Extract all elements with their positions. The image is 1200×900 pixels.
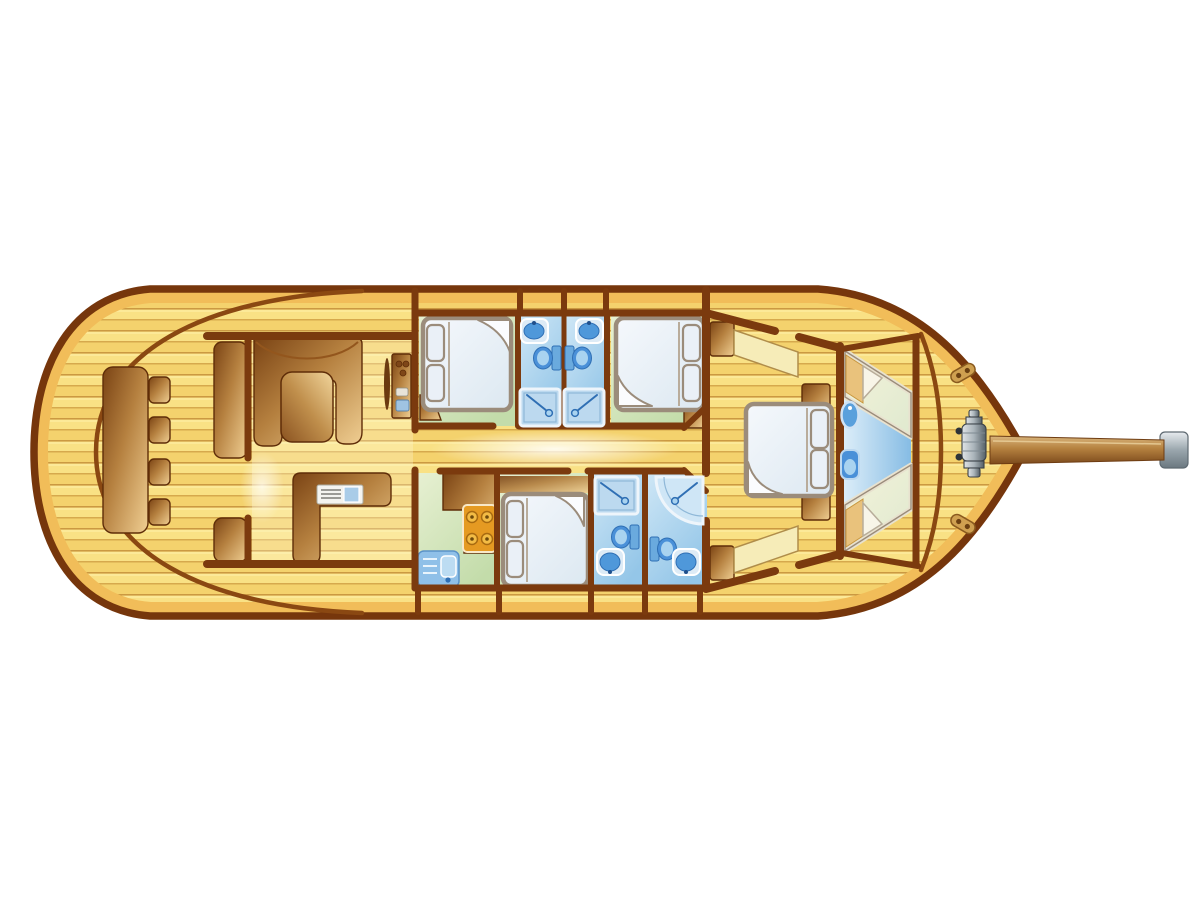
locker [710, 546, 734, 580]
burner-center [470, 515, 474, 519]
bowsprit-pole [990, 436, 1164, 464]
counter-sink [344, 487, 359, 502]
pillow [683, 365, 700, 401]
plan-canvas [0, 0, 1200, 900]
pillow [427, 325, 444, 361]
steering-wheel [384, 358, 390, 410]
cabin-2 [616, 318, 704, 428]
instrument-knob [396, 361, 402, 367]
stove [463, 505, 496, 552]
windlass-neck [966, 417, 982, 424]
burner-center [470, 537, 474, 541]
instrument-knob [403, 361, 409, 367]
stool [149, 459, 170, 485]
toilet-tank [630, 525, 639, 549]
faucet [684, 570, 688, 574]
burner-center [485, 537, 489, 541]
faucet [532, 321, 536, 325]
aft-bench-lower [214, 518, 247, 562]
locker [710, 322, 734, 356]
shower-head [572, 410, 579, 417]
cabin-3 [500, 476, 588, 586]
pillow [427, 365, 444, 401]
shower-head [622, 498, 629, 505]
stove-top [463, 505, 496, 552]
salon-table [281, 372, 333, 442]
cabinet-strip [500, 476, 588, 493]
stool [149, 417, 170, 443]
pillow [507, 541, 523, 577]
faucet [587, 321, 591, 325]
windlass-bolt [956, 428, 963, 435]
toilet-bowl [844, 459, 856, 475]
galley-sink-unit [418, 551, 459, 587]
shower-head [546, 410, 553, 417]
salon-door-glow [240, 451, 284, 523]
sink-basin [441, 556, 456, 577]
faucet [445, 577, 450, 582]
cabin-1 [420, 318, 511, 420]
stool [149, 499, 170, 525]
pillow [507, 501, 523, 537]
windlass-foot [968, 468, 980, 477]
aft-deck-table [103, 367, 148, 533]
shower [564, 389, 604, 426]
toilet-bowl [615, 530, 627, 545]
washbasin [600, 553, 620, 571]
washbasin [842, 402, 859, 428]
toilet-bowl [537, 351, 549, 366]
yacht-floor-plan [0, 0, 1200, 900]
aft-bench-upper [214, 342, 247, 458]
windlass-bolt [956, 454, 963, 461]
pillow [683, 325, 700, 361]
corridor-light-glow [430, 430, 680, 468]
toilet-bowl [661, 542, 673, 557]
toilet-bowl [576, 351, 588, 366]
instrument-display [396, 388, 408, 396]
stool [149, 377, 170, 403]
washbasin [524, 323, 544, 339]
shower-head [672, 498, 679, 505]
toilet-tank [552, 346, 561, 370]
instrument-screen [396, 400, 409, 411]
windlass-cap [969, 410, 979, 417]
burner-center [485, 515, 489, 519]
pillow [811, 450, 828, 488]
washbasin [579, 323, 599, 339]
washbasin [676, 553, 696, 571]
faucet [608, 570, 612, 574]
windlass-flange [964, 461, 984, 468]
faucet [848, 406, 852, 410]
pillow [811, 410, 828, 448]
shower [520, 389, 560, 426]
instrument-knob [400, 370, 406, 376]
